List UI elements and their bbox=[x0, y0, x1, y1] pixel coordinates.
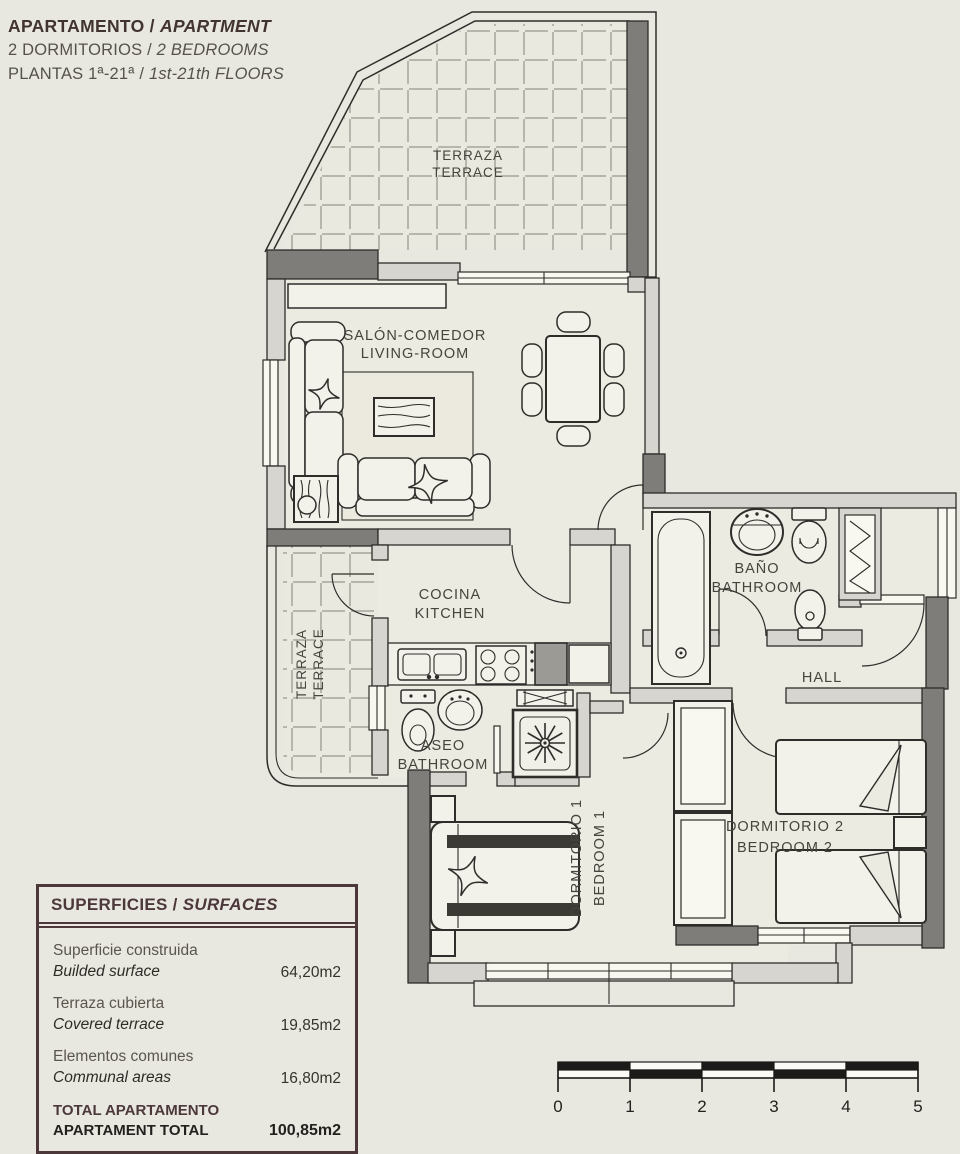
kitchen-fixtures bbox=[388, 643, 611, 685]
wall-kitchen-left-a bbox=[372, 545, 388, 560]
wall-living-left-upper bbox=[267, 279, 285, 360]
terrace-top-label-en: TERRACE bbox=[432, 165, 504, 180]
dining-chair bbox=[522, 344, 542, 377]
subtitle-bedrooms: 2 DORMITORIOS / 2 BEDROOMS bbox=[8, 38, 284, 62]
kitchen-label-en: KITCHEN bbox=[415, 606, 486, 622]
wall-living-kitchen-a bbox=[378, 529, 510, 545]
terrace-slider-window bbox=[458, 272, 630, 284]
table-row: Superficie construida Builded surface 64… bbox=[53, 940, 341, 982]
row-value: 16,80m2 bbox=[281, 1070, 341, 1088]
table-row: Elementos comunes Communal areas 16,80m2 bbox=[53, 1046, 341, 1088]
wall-dark-bedroom1-left bbox=[408, 770, 430, 983]
hall-closet bbox=[839, 508, 881, 600]
row-label-es: Superficie construida bbox=[53, 940, 341, 961]
toilet bbox=[792, 508, 826, 563]
bathroom-sink bbox=[731, 509, 783, 555]
row-value: 19,85m2 bbox=[281, 1017, 341, 1035]
dining-chair bbox=[522, 383, 542, 416]
washing-machine bbox=[517, 690, 573, 706]
scale-bar: 0 1 2 3 4 5 bbox=[553, 1062, 922, 1116]
hall-label: HALL bbox=[802, 670, 842, 686]
surfaces-title-en: SURFACES bbox=[183, 895, 278, 914]
sofa-horizontal bbox=[338, 454, 490, 516]
title-es: APARTAMENTO bbox=[8, 16, 145, 36]
wall-dark-living-bottom bbox=[267, 529, 378, 546]
bed1-stripe bbox=[447, 835, 579, 848]
wall-bathroom-top bbox=[643, 493, 956, 508]
wall-shower-right bbox=[577, 693, 590, 777]
bedroom2-closet bbox=[674, 701, 732, 925]
surfaces-table-body: Superficie construida Builded surface 64… bbox=[39, 926, 355, 1151]
subtitle2-es: PLANTAS 1ª-21ª bbox=[8, 65, 135, 83]
wall-bedroom1-bottom-b bbox=[732, 963, 838, 983]
wall-living-top bbox=[378, 263, 460, 280]
wall-kitchen-left-c bbox=[372, 730, 388, 775]
aseo-sink bbox=[438, 690, 482, 730]
wall-bedroom1-bottom-a bbox=[428, 963, 488, 983]
aseo-terrace-window bbox=[369, 686, 385, 730]
row-value: 64,20m2 bbox=[281, 964, 341, 982]
sideboard bbox=[288, 284, 446, 308]
title-separator: / bbox=[145, 16, 161, 36]
bathroom-label-en: BATHROOM bbox=[712, 580, 803, 596]
total-label-es: TOTAL APARTAMENTO bbox=[53, 1101, 341, 1121]
coffee-table bbox=[374, 398, 434, 436]
terrace-side-label-es: TERRAZA bbox=[294, 629, 309, 699]
title-en: APARTMENT bbox=[160, 16, 271, 36]
bidet bbox=[795, 590, 825, 640]
scale-label-1: 1 bbox=[625, 1097, 634, 1116]
kitchen-label-es: COCINA bbox=[419, 587, 481, 603]
nightstand bbox=[431, 796, 455, 822]
subtitle1-en: 2 BEDROOMS bbox=[157, 41, 269, 59]
subtitle-floors: PLANTAS 1ª-21ª / 1st-21th FLOORS bbox=[8, 62, 284, 86]
surfaces-table-header: SUPERFICIES / SURFACES bbox=[39, 887, 355, 924]
window-bay-sill bbox=[474, 981, 734, 1006]
scale-label-0: 0 bbox=[553, 1097, 562, 1116]
bed2b bbox=[776, 850, 926, 923]
wall-bedroom1-door-stub bbox=[590, 701, 623, 713]
kitchen-cabinet bbox=[569, 645, 609, 683]
dining-chair bbox=[604, 383, 624, 416]
aseo-label-en: BATHROOM bbox=[398, 757, 489, 773]
bed2a bbox=[776, 740, 926, 814]
wall-living-kitchen-b bbox=[570, 529, 615, 545]
table-row: Terraza cubierta Covered terrace 19,85m2 bbox=[53, 993, 341, 1035]
wall-living-left-lower bbox=[267, 466, 285, 529]
bedroom1-label-es: DORMITORIO 1 bbox=[569, 799, 585, 917]
subtitle1-separator: / bbox=[142, 41, 156, 59]
aseo-label-es: ASEO bbox=[421, 738, 465, 754]
dining-chair bbox=[557, 312, 590, 332]
surfaces-title-separator: / bbox=[168, 895, 183, 914]
living-left-window bbox=[263, 360, 278, 466]
scale-label-5: 5 bbox=[913, 1097, 922, 1116]
living-label-es: SALÓN-COMEDOR bbox=[344, 327, 487, 344]
bedroom2-label-es: DORMITORIO 2 bbox=[726, 819, 844, 835]
bedroom2-window bbox=[758, 928, 850, 943]
bedroom2-label-en: BEDROOM 2 bbox=[737, 840, 833, 856]
bed1-stripe bbox=[447, 903, 579, 916]
scale-label-3: 3 bbox=[769, 1097, 778, 1116]
bathroom-label-es: BAÑO bbox=[734, 560, 779, 577]
plant-table bbox=[294, 476, 338, 522]
terrace-top-tiles bbox=[283, 24, 627, 250]
wall-corridor bbox=[611, 545, 630, 693]
stove bbox=[476, 646, 534, 684]
wall-dark-entry bbox=[926, 597, 948, 689]
wall-bedroom2-top-b bbox=[786, 688, 926, 703]
table-total-row: TOTAL APARTAMENTO APARTAMENT TOTAL 100,8… bbox=[53, 1101, 341, 1141]
subtitle2-en: 1st-21th FLOORS bbox=[149, 65, 284, 83]
bathtub bbox=[652, 512, 710, 684]
scale-bar-segments bbox=[558, 1062, 918, 1078]
terrace-column bbox=[627, 21, 648, 277]
fridge bbox=[535, 643, 567, 685]
surfaces-title-es: SUPERFICIES bbox=[51, 895, 168, 914]
wall-bedroom2-bottom bbox=[850, 926, 922, 945]
aseo-door bbox=[494, 726, 500, 773]
bedroom1-label-en: BEDROOM 1 bbox=[592, 810, 608, 906]
living-label-en: LIVING-ROOM bbox=[361, 346, 469, 362]
terrace-top-label-es: TERRAZA bbox=[433, 148, 503, 163]
wall-dark-bedroom2-bottom bbox=[676, 926, 758, 945]
subtitle2-separator: / bbox=[135, 65, 149, 83]
row-label-es: Elementos comunes bbox=[53, 1046, 341, 1067]
terrace-side-label-en: TERRACE bbox=[311, 628, 326, 700]
wall-living-right bbox=[645, 278, 659, 454]
surfaces-table: SUPERFICIES / SURFACES Superficie constr… bbox=[36, 884, 358, 1154]
kitchen-sink bbox=[398, 649, 466, 680]
wall-dark-living-top bbox=[267, 250, 378, 279]
shower bbox=[513, 710, 577, 777]
subtitle1-es: 2 DORMITORIOS bbox=[8, 41, 142, 59]
row-label-es: Terraza cubierta bbox=[53, 993, 341, 1014]
total-value: 100,85m2 bbox=[269, 1122, 341, 1140]
title-block: APARTAMENTO / APARTMENT 2 DORMITORIOS / … bbox=[8, 14, 284, 86]
right-wall-window bbox=[938, 508, 956, 598]
page-title: APARTAMENTO / APARTMENT bbox=[8, 14, 284, 38]
dining-chair bbox=[604, 344, 624, 377]
nightstand bbox=[431, 930, 455, 956]
scale-label-2: 2 bbox=[697, 1097, 706, 1116]
dining-chair bbox=[557, 426, 590, 446]
dining-table bbox=[546, 336, 600, 422]
nightstand bbox=[894, 817, 926, 848]
scale-label-4: 4 bbox=[841, 1097, 850, 1116]
wall-kitchen-left-b bbox=[372, 618, 388, 686]
wall-dark-column-mid bbox=[643, 454, 665, 494]
